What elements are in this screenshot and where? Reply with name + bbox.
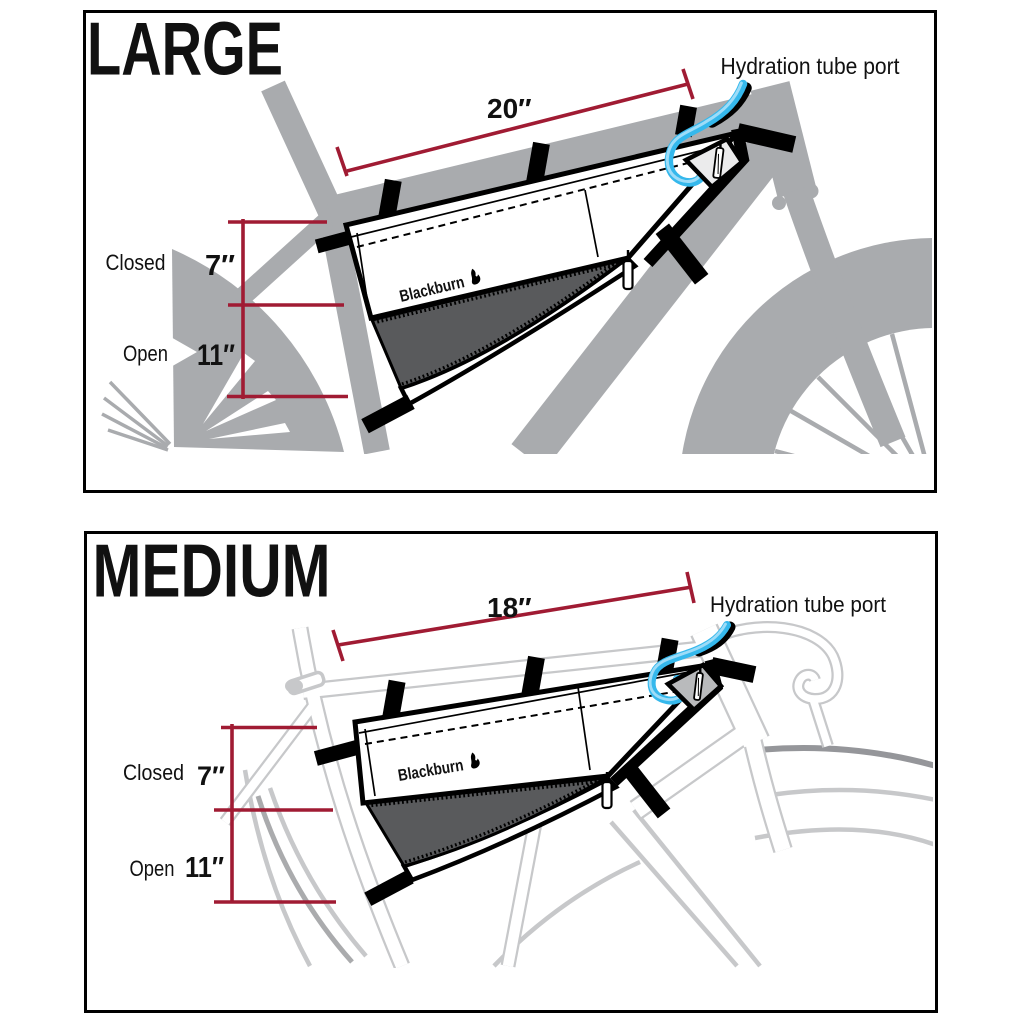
svg-text:Open: Open xyxy=(130,856,175,881)
svg-text:Closed: Closed xyxy=(123,760,184,785)
svg-text:MEDIUM: MEDIUM xyxy=(93,529,331,613)
svg-text:Hydration tube port: Hydration tube port xyxy=(710,592,886,617)
svg-text:20″: 20″ xyxy=(487,93,532,124)
svg-text:11″: 11″ xyxy=(197,339,235,372)
svg-text:7″: 7″ xyxy=(197,761,225,791)
svg-text:Closed: Closed xyxy=(106,250,166,275)
svg-text:LARGE: LARGE xyxy=(87,7,283,91)
svg-text:Hydration tube port: Hydration tube port xyxy=(721,53,901,79)
svg-text:7″: 7″ xyxy=(205,250,235,282)
svg-text:18″: 18″ xyxy=(487,592,532,623)
svg-text:Open: Open xyxy=(123,341,168,366)
svg-text:11″: 11″ xyxy=(185,852,224,884)
